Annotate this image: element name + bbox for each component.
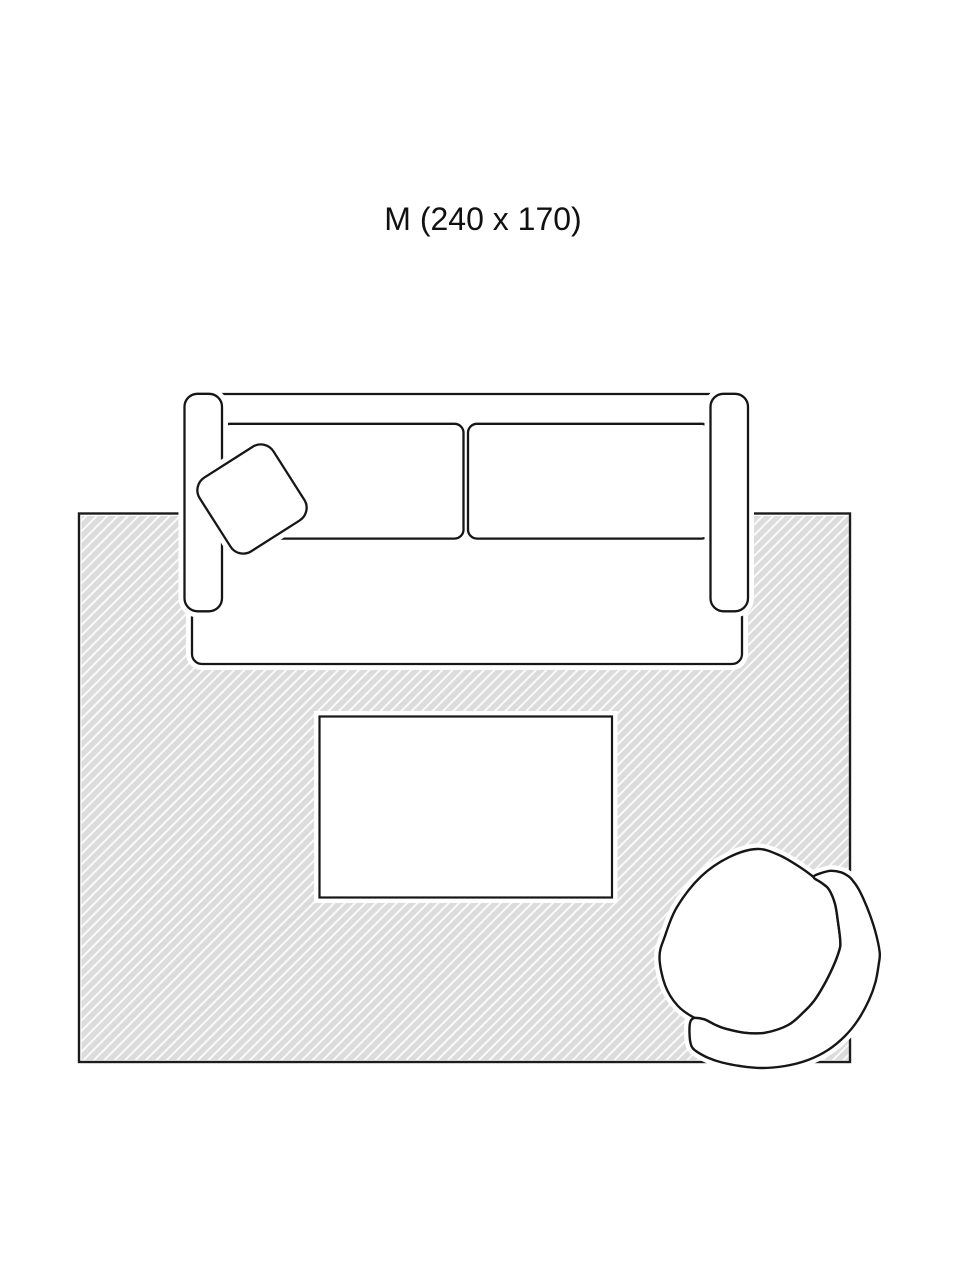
- svg-text:M (240 x 170): M (240 x 170): [384, 201, 581, 237]
